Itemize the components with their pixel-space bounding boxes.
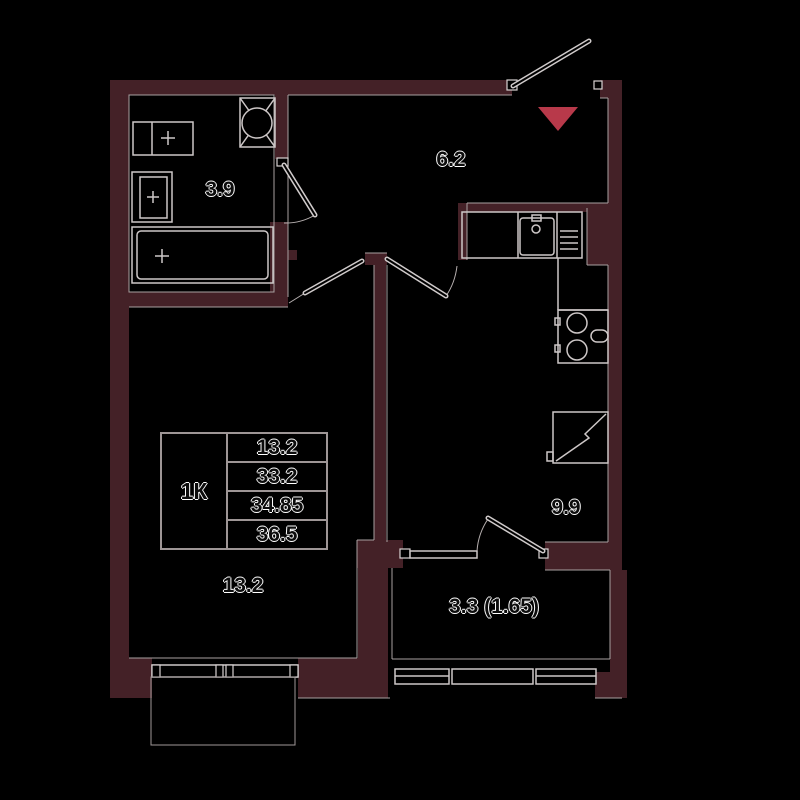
floor-plan: 3.9 6.2 9.9 13.2 3.3 (1.65) 1К 13.2 33.2… (0, 0, 800, 800)
table-row: 13.2 (228, 434, 326, 463)
floor-plan-drawing (0, 0, 800, 800)
walls (110, 80, 627, 698)
balcony-glazing (395, 669, 596, 684)
kitchen-door (387, 259, 457, 296)
table-row: 36.5 (228, 521, 326, 548)
bathtub-icon (132, 227, 273, 283)
washing-machine-icon (133, 122, 193, 155)
room-label-bathroom: 3.9 (205, 178, 234, 202)
living-room-door (289, 261, 362, 303)
open-balcony-outline (151, 677, 295, 745)
entrance-marker-icon (538, 107, 578, 131)
bathroom-door (277, 158, 315, 223)
apartment-areas-column: 13.2 33.2 34.85 36.5 (228, 434, 326, 548)
room-label-hallway: 6.2 (436, 148, 465, 172)
sink-icon (132, 172, 172, 222)
apartment-info-table: 1К 13.2 33.2 34.85 36.5 (160, 432, 328, 550)
balcony-door (400, 518, 548, 558)
room-label-living-room: 13.2 (223, 574, 264, 598)
table-row: 34.85 (228, 492, 326, 521)
living-room-window (152, 665, 298, 677)
entrance-door (507, 41, 602, 90)
stove-icon (555, 310, 608, 363)
room-label-balcony: 3.3 (1.65) (449, 595, 539, 619)
room-label-kitchen: 9.9 (551, 496, 580, 520)
kitchen-counter (558, 258, 608, 310)
kitchen-sink-icon (462, 212, 582, 258)
fridge-icon (547, 412, 608, 463)
vent-shaft-icon (240, 98, 275, 147)
apartment-type-cell: 1К (162, 434, 228, 548)
table-row: 33.2 (228, 463, 326, 492)
